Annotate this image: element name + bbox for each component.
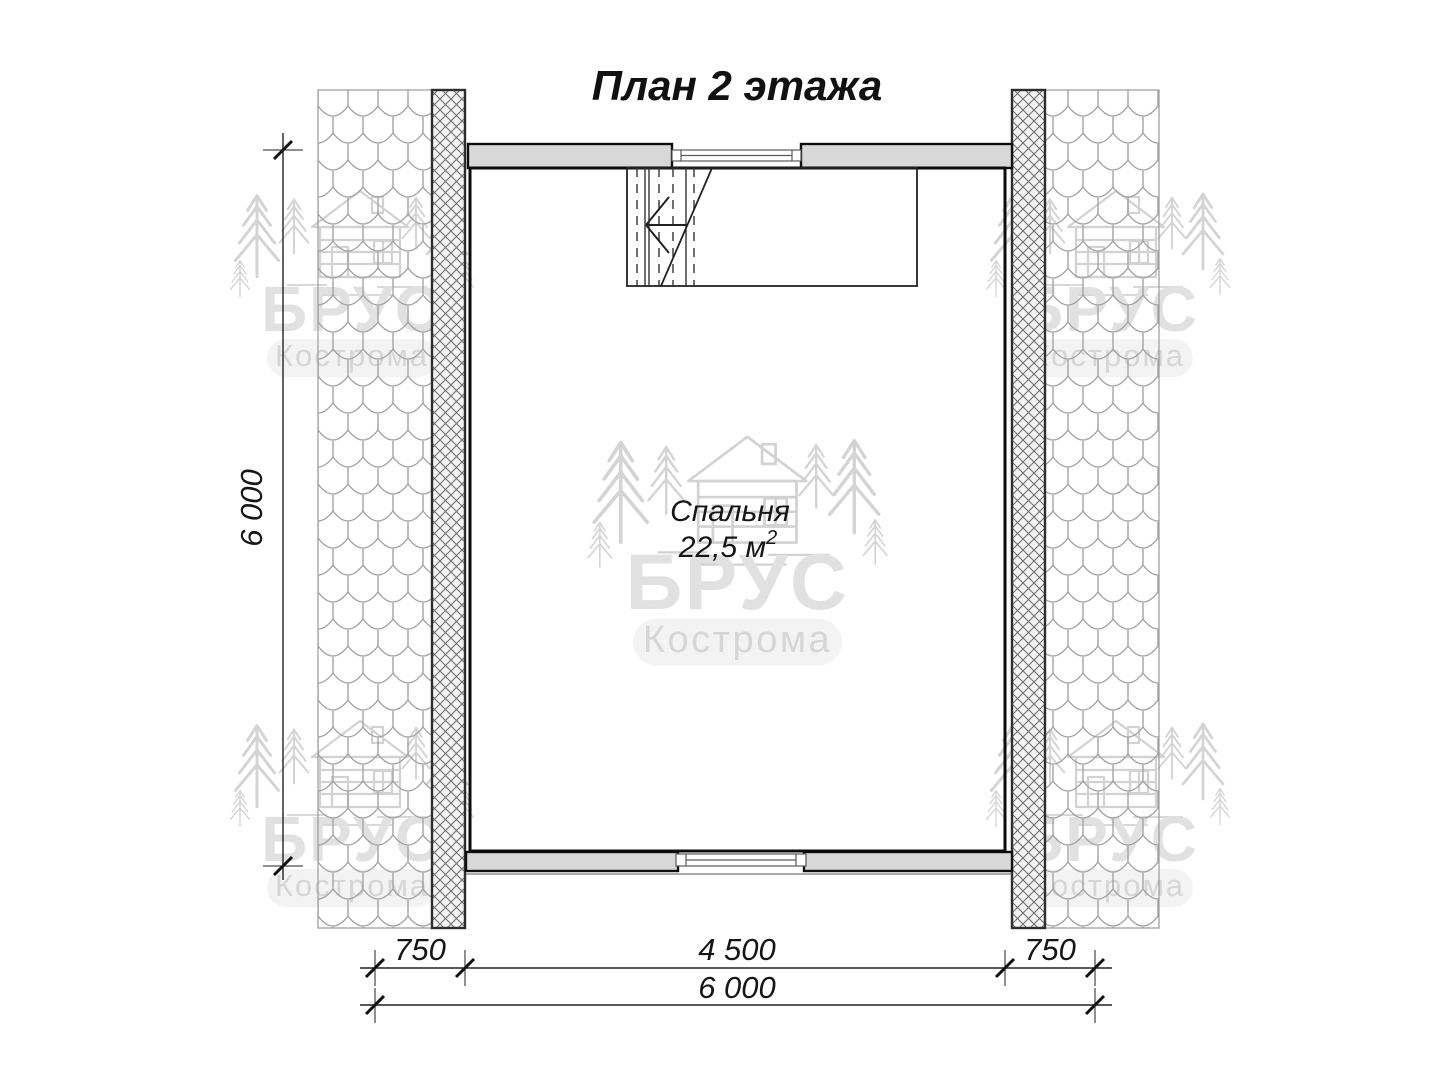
dim-bottom-total: 6 000 [698,970,776,1005]
dim-segment-middle: 4 500 [698,932,776,967]
dim-left-total: 6 000 [234,469,269,547]
dimension-bottom-total: 6 000 [360,970,1112,1023]
dim-segment-right: 750 [1024,932,1076,967]
floor-plan-canvas: БРУС Кострома План 2 этажа [0,0,1440,1080]
left-wall-hatch [432,90,465,928]
page-title: План 2 этажа [592,62,882,109]
bottom-window [676,854,806,866]
floor-plan-page: БРУС Кострома План 2 этажа [0,0,1440,1080]
right-roof-strip [1045,90,1159,928]
dim-segment-left: 750 [394,932,446,967]
left-roof-strip [318,90,432,928]
stair-direction-arrow-icon [646,197,688,253]
stair-treads [637,168,694,286]
room-area: 22,5 м2 [678,527,777,564]
staircase [627,168,917,286]
room-area-value: 22,5 м [678,531,766,564]
room-area-superscript: 2 [765,527,777,549]
right-wall-hatch [1012,90,1045,928]
top-window [672,150,801,161]
room-name: Спальня [670,495,790,528]
